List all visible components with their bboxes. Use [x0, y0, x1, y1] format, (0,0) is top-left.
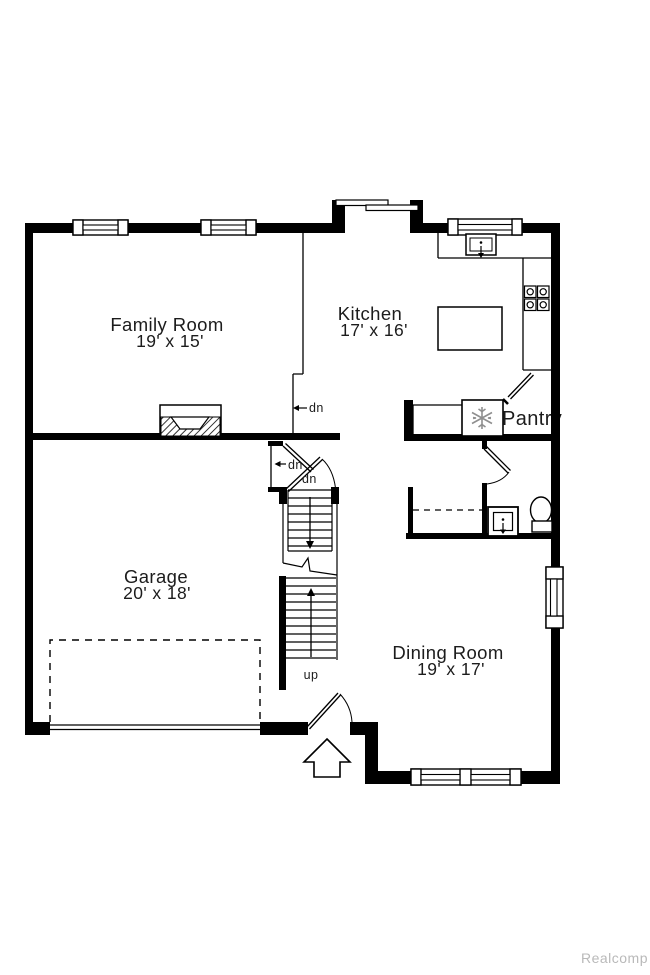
wall-segment: [128, 223, 202, 233]
sliding-door-panel: [366, 205, 418, 211]
kitchen-sink: [466, 234, 496, 258]
powder-sink: [488, 507, 518, 536]
wall-segment: [410, 223, 450, 233]
dn-label: dn: [288, 458, 303, 472]
floorplan-svg: Pantry: [0, 0, 650, 975]
wall-segment: [551, 223, 560, 569]
wall-segment: [551, 627, 560, 784]
counter-by-fridge: [413, 405, 462, 434]
door-swing-arc: [340, 694, 352, 722]
window: [201, 220, 256, 235]
wall-segment: [279, 576, 286, 690]
window: [546, 567, 563, 628]
dn-label: dn: [309, 401, 324, 415]
powder-door-leaf: [484, 447, 511, 474]
wall-segment: [268, 441, 283, 446]
window: [73, 220, 128, 235]
fireplace: [160, 405, 221, 437]
dining-room-dims: 19' x 17': [417, 659, 485, 679]
room-labels: Family Room 19' x 15' Kitchen 17' x 16' …: [110, 303, 503, 679]
walls: [25, 200, 560, 784]
window: [448, 219, 522, 235]
garage-door: [50, 725, 260, 730]
fixtures: [160, 234, 552, 536]
windows: [73, 219, 563, 785]
wall-segment: [260, 722, 308, 735]
down-arrow-head: [306, 541, 314, 549]
wall-segment: [279, 487, 287, 504]
entry-arrow: [304, 739, 350, 777]
dn-arrow-head: [275, 461, 281, 467]
up-arrow-head: [307, 588, 315, 596]
window: [411, 769, 521, 785]
wall-segment: [408, 487, 413, 537]
wall-segment: [25, 223, 33, 733]
garage-door-zone-dashed: [50, 640, 260, 722]
realcomp-watermark: Realcomp: [581, 950, 648, 966]
wall-segment: [256, 223, 338, 233]
pantry-door-leaf: [508, 373, 534, 399]
wall-segment: [404, 400, 413, 438]
wall-segment: [25, 223, 74, 233]
toilet: [531, 497, 553, 532]
wall-segment: [482, 483, 487, 535]
door-swing-arc: [487, 472, 509, 484]
garage-dims: 20' x 18': [123, 583, 191, 603]
dn-arrow-head: [293, 405, 299, 411]
direction-labels: dn dn dn up: [288, 401, 324, 682]
stair-arrows: [306, 497, 315, 657]
wall-segment: [350, 722, 378, 735]
wall-segment: [482, 441, 487, 449]
door-swing-arc: [322, 459, 336, 488]
kitchen-island: [438, 307, 502, 350]
entry-door-leaf: [307, 693, 341, 729]
family-room-dims: 19' x 15': [136, 331, 204, 351]
up-label: up: [304, 668, 319, 682]
refrigerator: [462, 400, 503, 436]
dn-label: dn: [302, 472, 317, 486]
stair-break-line: [283, 558, 337, 575]
stove: [525, 286, 550, 311]
wall-segment: [520, 771, 560, 784]
half-wall-family-kitchen: [293, 233, 303, 433]
kitchen-dims: 17' x 16': [340, 320, 408, 340]
floorplan-canvas: Pantry: [0, 0, 650, 975]
wall-segment: [25, 722, 50, 735]
